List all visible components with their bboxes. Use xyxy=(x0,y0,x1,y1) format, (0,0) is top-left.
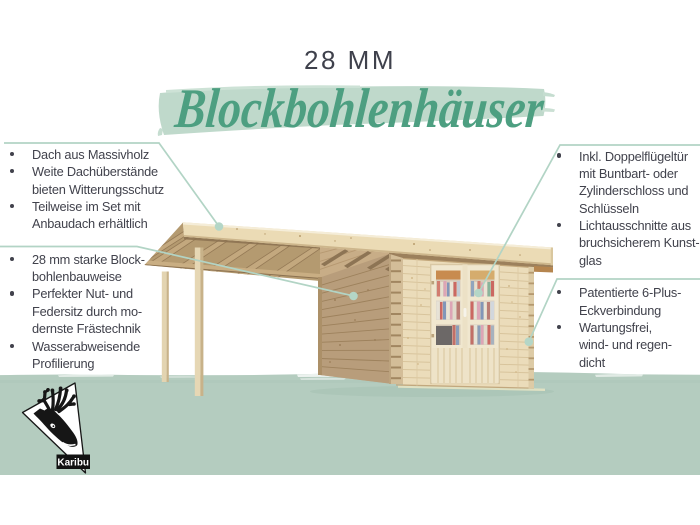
svg-text:Karibu: Karibu xyxy=(57,458,89,469)
svg-text:Blockbohlenhäuser: Blockbohlenhäuser xyxy=(172,78,547,140)
